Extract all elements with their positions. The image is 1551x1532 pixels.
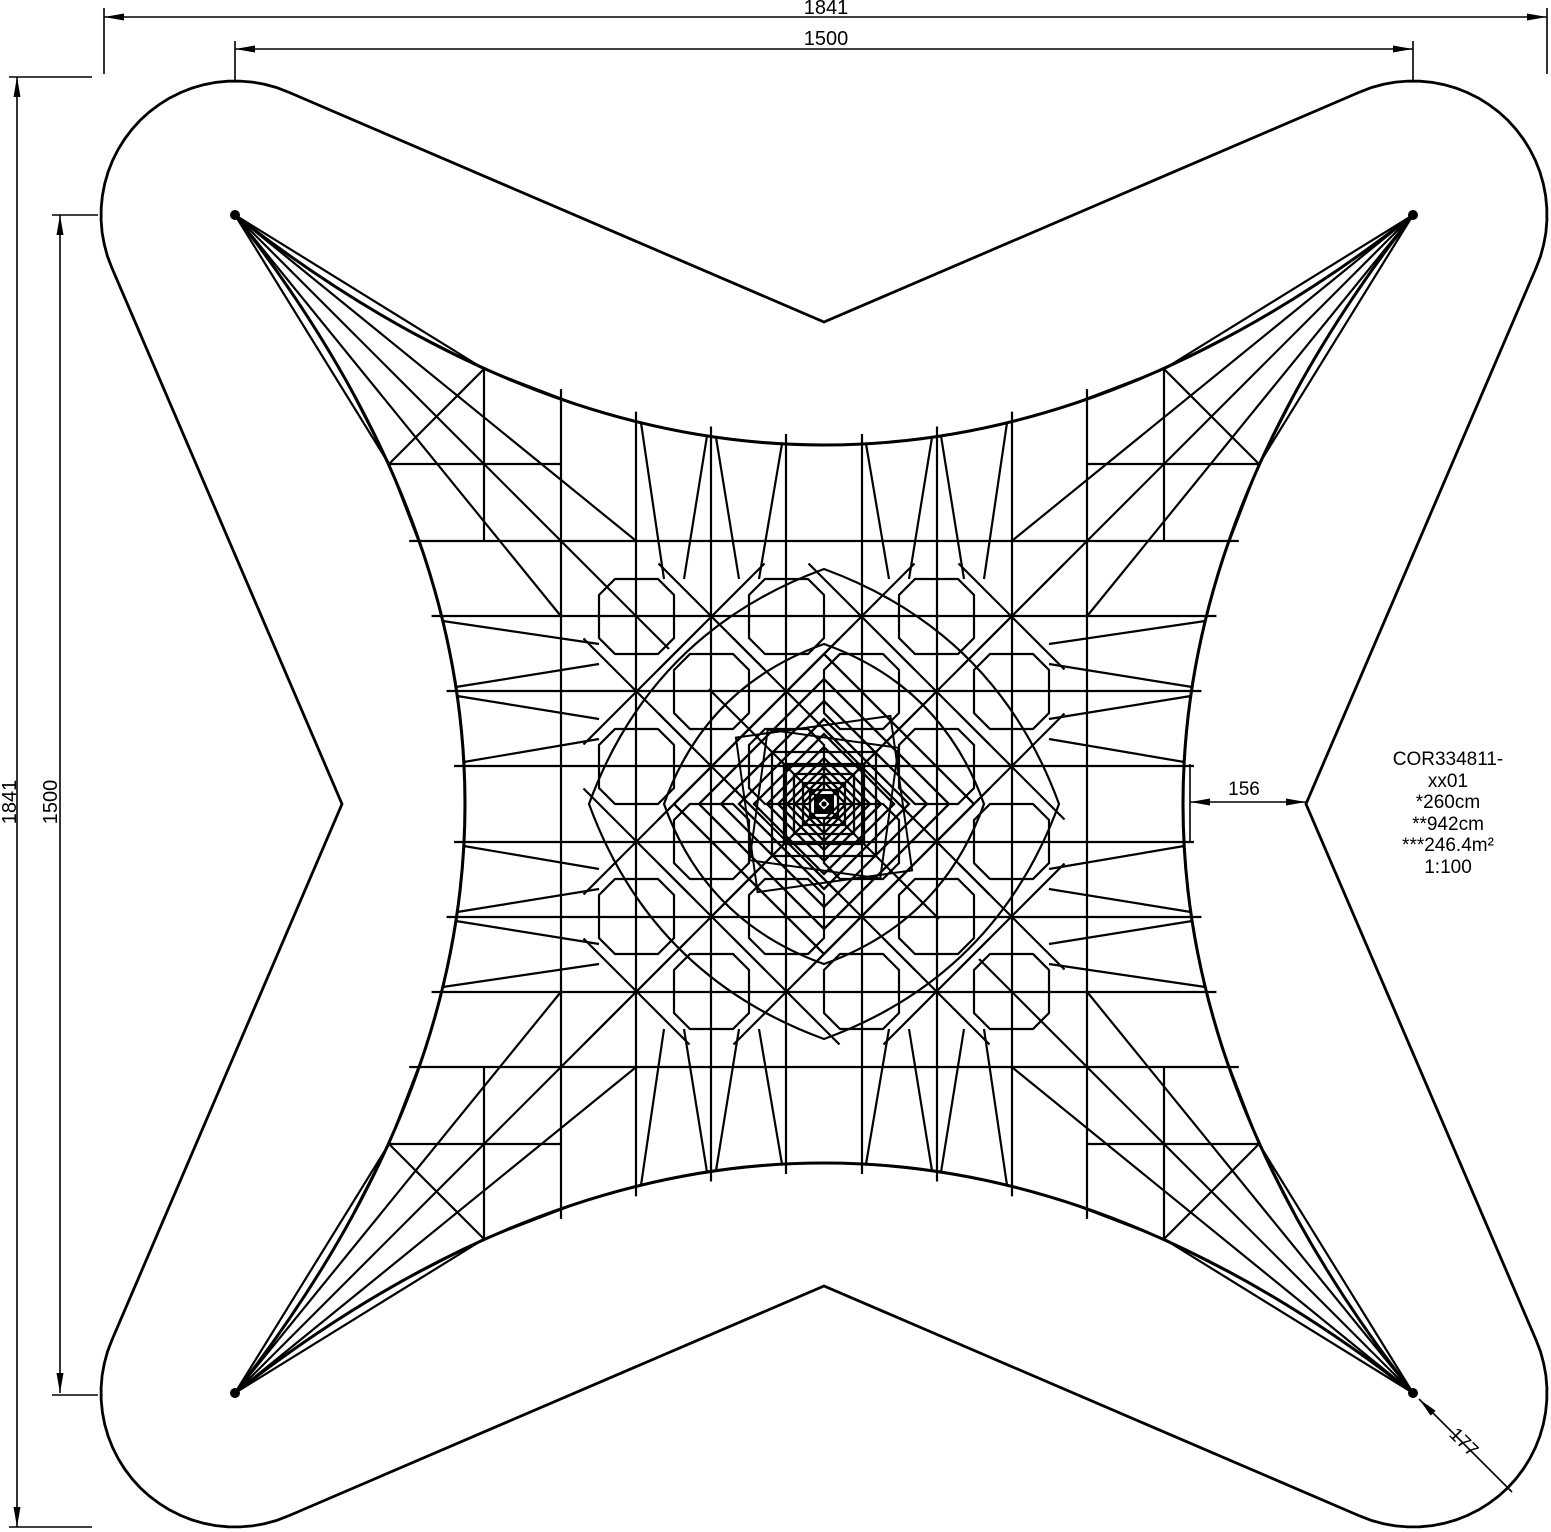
dim-label-inner-height: 1500 [41,780,61,825]
drawing-sheet: 1841 1500 1841 1500 156 177 COR334811-xx… [0,0,1551,1532]
title-block: COR334811-xx01 *260cm **942cm ***246.4m²… [1377,749,1519,878]
dim-label-inner-width: 1500 [804,29,849,49]
dim-label-outer-width: 1841 [804,0,849,18]
net-drawing-canvas [0,0,1551,1532]
note-rope-length: **942cm [1377,814,1519,836]
drawing-scale: 1:100 [1377,857,1519,879]
dim-label-edge-offset: 156 [1228,780,1260,800]
note-height: *260cm [1377,792,1519,814]
dimension-lines [9,8,1547,1527]
part-number: COR334811-xx01 [1377,749,1519,792]
note-area: ***246.4m² [1377,835,1519,857]
dim-label-outer-height: 1841 [0,780,20,825]
